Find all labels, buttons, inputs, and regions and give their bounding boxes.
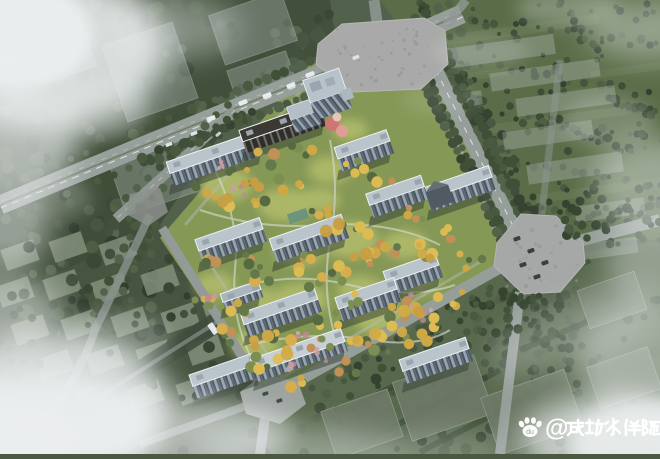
svg-text:du: du <box>526 429 534 436</box>
svg-text:@: @ <box>545 415 568 442</box>
